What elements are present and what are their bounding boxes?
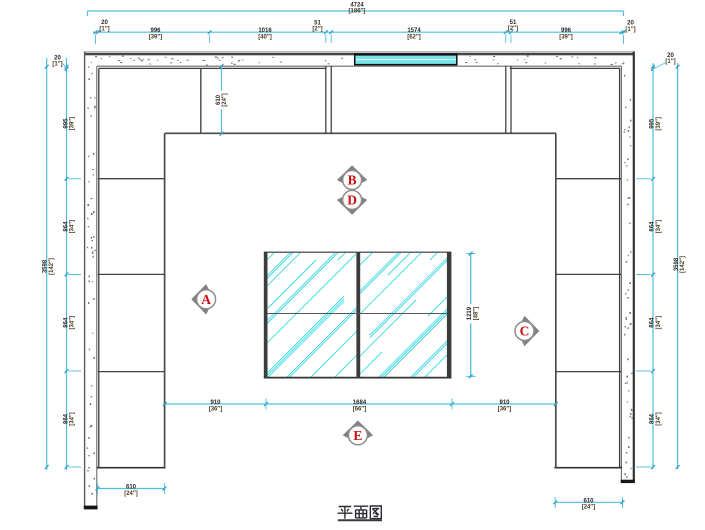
svg-text:20: 20 [667,53,674,59]
svg-text:B: B [348,173,357,188]
svg-text:[24″]: [24″] [582,505,596,511]
svg-text:910: 910 [210,400,221,406]
svg-text:610: 610 [583,498,594,504]
svg-text:[66″]: [66″] [353,406,367,412]
svg-text:864: 864 [63,317,69,328]
svg-text:[34″]: [34″] [70,316,76,330]
svg-text:[39″]: [39″] [656,117,662,131]
svg-text:[34″]: [34″] [70,412,76,426]
svg-text:[186″]: [186″] [349,9,366,15]
svg-text:[142″]: [142″] [49,258,55,275]
svg-text:[34″]: [34″] [656,316,662,330]
svg-text:51: 51 [510,20,517,26]
svg-text:[62″]: [62″] [407,34,421,40]
svg-text:[39″]: [39″] [559,34,573,40]
svg-text:1219: 1219 [467,306,473,320]
svg-text:[34″]: [34″] [656,412,662,426]
svg-text:[39″]: [39″] [70,117,76,131]
svg-text:996: 996 [561,28,572,34]
svg-text:51: 51 [314,20,321,26]
svg-text:[1″]: [1″] [625,27,635,33]
svg-text:[39″]: [39″] [149,34,163,40]
svg-text:20: 20 [54,55,61,61]
svg-text:A: A [201,292,211,307]
svg-text:[2″]: [2″] [508,26,518,32]
svg-text:[40″]: [40″] [258,34,272,40]
svg-text:[24″]: [24″] [222,93,228,107]
svg-text:3598: 3598 [43,259,49,273]
svg-text:D: D [347,193,357,208]
svg-text:[142″]: [142″] [680,256,686,273]
svg-text:3598: 3598 [674,257,680,271]
svg-text:4724: 4724 [350,2,364,8]
svg-text:996: 996 [150,28,161,34]
svg-text:610: 610 [216,94,222,105]
svg-text:C: C [520,324,530,339]
svg-text:995: 995 [650,118,656,129]
svg-text:[34″]: [34″] [656,220,662,234]
svg-text:20: 20 [101,20,108,26]
svg-text:864: 864 [650,413,656,424]
svg-text:[34″]: [34″] [70,220,76,234]
svg-text:[1″]: [1″] [99,26,109,32]
svg-text:[1″]: [1″] [665,59,675,65]
svg-text:864: 864 [63,221,69,232]
svg-text:[1″]: [1″] [52,62,62,68]
svg-text:20: 20 [627,21,634,27]
svg-text:[24″]: [24″] [124,491,138,497]
svg-text:864: 864 [650,221,656,232]
svg-text:[2″]: [2″] [312,27,322,33]
svg-text:610: 610 [126,485,137,491]
svg-text:E: E [353,428,362,443]
svg-text:[36″]: [36″] [209,406,223,412]
svg-text:864: 864 [650,317,656,328]
svg-text:1684: 1684 [353,400,367,406]
svg-text:995: 995 [63,118,69,129]
svg-text:[36″]: [36″] [498,406,512,412]
svg-text:910: 910 [499,400,510,406]
svg-text:1016: 1016 [258,28,272,34]
svg-text:864: 864 [63,413,69,424]
svg-text:1574: 1574 [407,28,421,34]
svg-text:[48″]: [48″] [473,307,479,321]
